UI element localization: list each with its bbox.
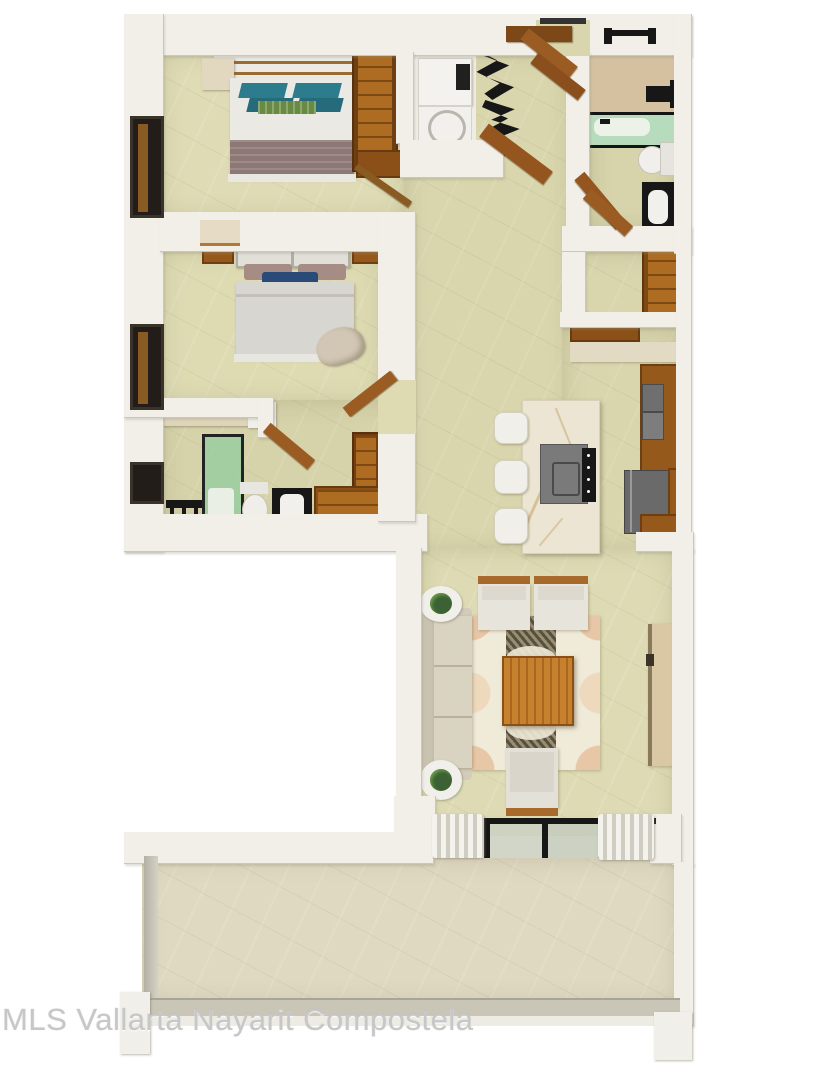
range-knob <box>587 478 590 481</box>
bathroom2-shower-fixture <box>166 500 202 508</box>
sliding-door-glass <box>546 824 598 858</box>
sliding-door-glass <box>488 824 542 858</box>
bar-stool <box>494 412 528 444</box>
bathroom-1-tan-floor <box>588 56 676 112</box>
kitchen-wall-oven <box>642 412 664 440</box>
sofa-cushion-line <box>434 665 472 667</box>
bar-stool <box>494 508 528 544</box>
curtain-right <box>598 814 654 860</box>
bed1-teal-pillow <box>292 83 342 98</box>
terrace-corner-post <box>654 1012 692 1060</box>
bed1-blanket <box>230 140 354 176</box>
armchair-wood-frame <box>478 576 530 584</box>
kitchen-counter <box>570 342 676 362</box>
range-knob <box>587 466 590 469</box>
sliding-door-frame <box>542 820 548 858</box>
bed1-teal-pillow <box>238 83 288 98</box>
floor-plan-canvas: MLS Vallarta Nayarit Compostela <box>0 0 816 1080</box>
terrace-ledge-wall <box>124 832 434 864</box>
armchair-cushion <box>510 752 554 792</box>
closet-left-wall <box>562 252 586 316</box>
terrace-left-railing <box>144 856 158 1006</box>
terrace-floor <box>142 858 678 1004</box>
laundry-left-wall <box>396 52 414 144</box>
headboard-niche <box>200 220 240 246</box>
bathroom1-window-bar <box>608 30 652 36</box>
sofa-cushion-line <box>434 716 472 718</box>
washer-control-panel <box>456 64 470 90</box>
kitchen-low-cabinet <box>640 514 678 534</box>
potted-plant <box>430 769 452 791</box>
sliding-door-frame <box>484 820 490 858</box>
armchair-cushion <box>538 586 584 600</box>
bathroom1-window-end <box>648 28 656 44</box>
right-wall-top <box>674 14 692 254</box>
entry-threshold <box>540 18 586 24</box>
range-knob <box>587 490 590 493</box>
bathroom1-tub-faucet <box>600 119 610 124</box>
bed1-green-pillow <box>258 101 316 114</box>
bed1-footboard <box>228 174 356 182</box>
bathroom1-window-end <box>604 28 612 44</box>
kitchen-wall-oven <box>642 384 664 412</box>
range-knob <box>587 454 590 457</box>
armchair-wood-frame <box>534 576 588 584</box>
sofa-seat <box>434 616 472 768</box>
central-wall <box>378 212 416 522</box>
potted-plant <box>430 593 452 614</box>
watermark-text: MLS Vallarta Nayarit Compostela <box>2 1002 474 1038</box>
bathroom1-sink <box>648 190 668 224</box>
armchair-cushion <box>482 586 526 600</box>
coffee-table <box>502 656 574 726</box>
bathroom2-toilet-tank <box>240 482 268 494</box>
bedroom1-window-frame <box>138 124 148 212</box>
closet-kitchen-wall <box>560 312 678 328</box>
tv-console <box>648 624 674 766</box>
bed2-fold-line <box>236 294 354 297</box>
right-wall-mid <box>676 252 692 552</box>
bar-stool <box>494 460 528 494</box>
bedroom-divider-wall <box>160 212 380 252</box>
living-left-wall <box>396 548 422 806</box>
kitchen-fridge-handle <box>630 470 632 532</box>
laundry-bottom-wall <box>400 140 504 178</box>
curtain-left <box>432 814 484 858</box>
armchair-wood-frame <box>506 808 558 816</box>
bedroom1-wardrobe-shelves <box>358 52 392 166</box>
bathroom2-window <box>130 462 164 504</box>
bedroom2-window-frame <box>138 332 148 404</box>
cooktop-inner <box>552 462 580 496</box>
tv-screen <box>646 654 654 666</box>
